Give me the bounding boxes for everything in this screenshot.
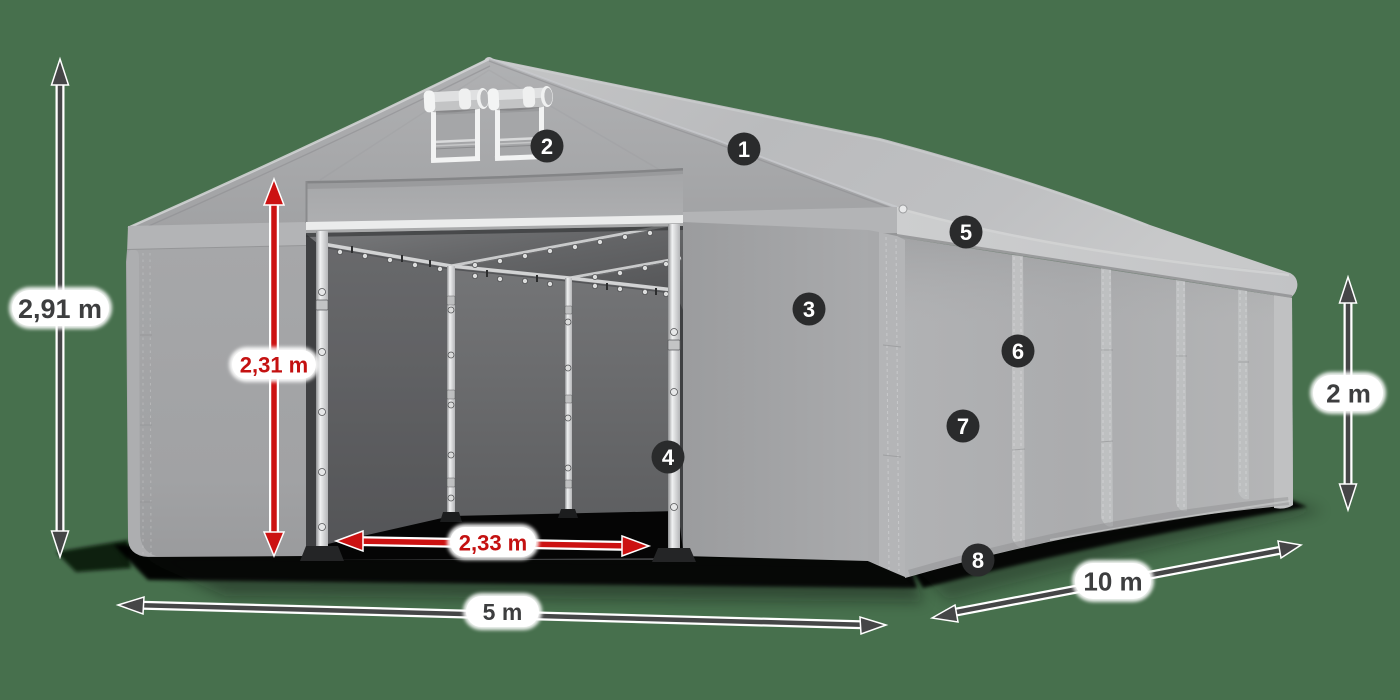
svg-text:1: 1 <box>738 137 750 162</box>
svg-text:5 m: 5 m <box>483 599 523 625</box>
svg-text:2 m: 2 m <box>1326 379 1371 409</box>
svg-text:2,31 m: 2,31 m <box>240 353 309 378</box>
svg-text:2,33 m: 2,33 m <box>459 531 528 556</box>
svg-text:5: 5 <box>960 220 972 245</box>
svg-text:2,91 m: 2,91 m <box>18 294 102 324</box>
svg-text:4: 4 <box>662 445 675 470</box>
svg-text:2: 2 <box>541 134 553 159</box>
svg-text:8: 8 <box>972 548 984 573</box>
svg-text:7: 7 <box>957 414 969 439</box>
svg-text:3: 3 <box>803 297 815 322</box>
svg-text:6: 6 <box>1012 339 1024 364</box>
svg-text:10 m: 10 m <box>1083 567 1142 597</box>
